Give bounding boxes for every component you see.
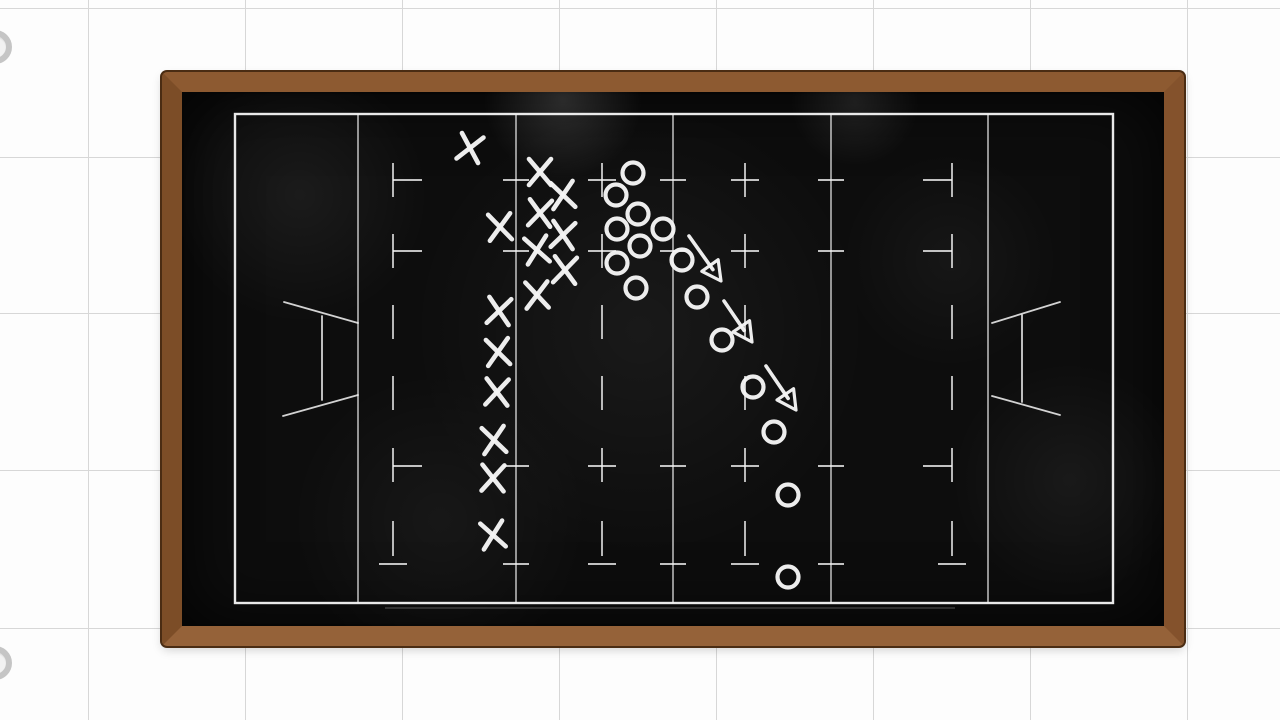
grid-line-vertical — [88, 0, 89, 720]
chalk-smudge — [790, 92, 920, 167]
chalk-smudge — [182, 92, 430, 325]
chalk-smudge — [840, 150, 1060, 370]
chalk-smudge — [950, 360, 1164, 600]
chalk-smudge — [410, 100, 870, 560]
chalkboard-frame — [162, 72, 1184, 646]
page-background — [0, 0, 1280, 720]
grid-line-horizontal — [0, 8, 1280, 9]
grid-line-vertical — [1187, 0, 1188, 720]
chalk-smudge — [483, 92, 643, 180]
chalkboard-surface — [182, 92, 1164, 626]
chalk-smudge — [290, 370, 590, 626]
